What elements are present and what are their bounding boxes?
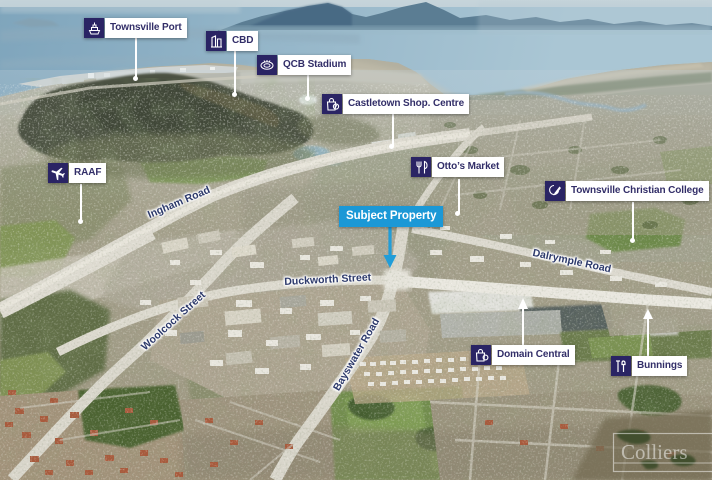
- svg-text:Colliers: Colliers: [621, 440, 688, 464]
